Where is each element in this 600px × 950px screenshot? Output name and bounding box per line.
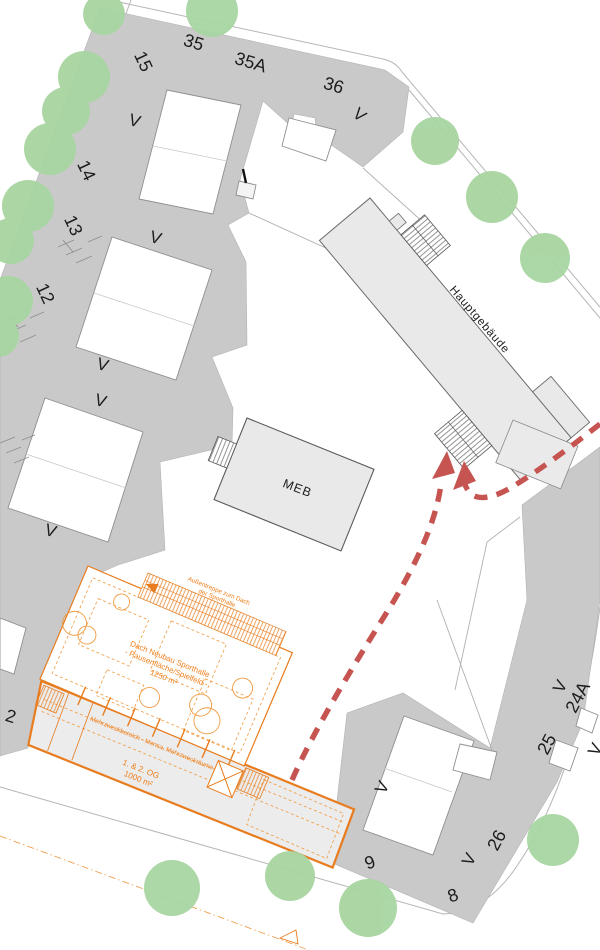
tree — [24, 123, 76, 175]
parcel-v-25: V — [584, 739, 600, 759]
entrance-mark — [243, 169, 246, 183]
tree — [527, 814, 579, 866]
route-arrow-main-head — [432, 451, 455, 479]
tree — [466, 171, 518, 223]
property-line — [455, 517, 520, 690]
boundary-arrow-icon — [280, 930, 298, 944]
site-plan-svg: 15 35 35A 36 V V 14 13 V 12 V V V 2 V 9 … — [0, 0, 600, 950]
tree — [144, 860, 200, 916]
site-plan: 15 35 35A 36 V V 14 13 V 12 V V V 2 V 9 … — [0, 0, 600, 950]
tree — [411, 117, 459, 165]
tree — [339, 879, 397, 937]
tree — [520, 233, 570, 283]
tree — [265, 851, 315, 901]
